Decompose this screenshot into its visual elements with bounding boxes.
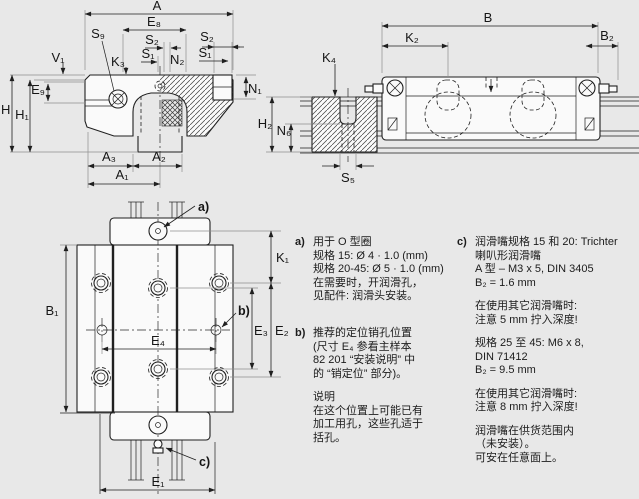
note-line: 规格 15: Ø 4 · 1.0 (mm) xyxy=(313,250,444,264)
callout-a-label: a) xyxy=(198,200,209,214)
note-line: 润滑嘴规格 15 和 20: Trichter xyxy=(475,236,618,250)
note-c-paragraph-4: 在使用其它润滑嘴时: 注意 8 mm 拧入深度! xyxy=(475,388,618,415)
drawing-top-view: a) b) c) K₁ E₂ E₃ E₄ B₁ xyxy=(0,198,300,499)
note-b-paragraph-2: 说明 在这个位置上可能已有 加工用孔，这些孔适于 括孔。 xyxy=(313,391,423,445)
callout-c-label: c) xyxy=(199,455,210,469)
note-c: c) 润滑嘴规格 15 和 20: Trichter 喇叭形润滑嘴 A 型 – … xyxy=(457,236,618,465)
note-line: 见配件: 润滑头安装。 xyxy=(313,290,444,304)
note-line: 在使用其它润滑嘴时: xyxy=(475,300,618,314)
note-b-marker: b) xyxy=(295,327,309,445)
note-line: 用于 O 型圈 xyxy=(313,236,444,250)
dim-label-H: H xyxy=(1,102,10,117)
dim-label-A2: A₂ xyxy=(152,149,166,164)
note-b-paragraph-1: 推荐的定位销孔位置 (尺寸 E₄ 参看主样本 82 201 “安装说明” 中 的… xyxy=(313,327,423,381)
dim-label-A3: A₃ xyxy=(102,149,116,164)
dim-label-H2: H₂ xyxy=(258,116,272,131)
dim-label-S9: S₉ xyxy=(91,26,105,41)
note-a-text: 用于 O 型圈 规格 15: Ø 4 · 1.0 (mm) 规格 20-45: … xyxy=(313,236,444,304)
dim-label-E1: E₁ xyxy=(151,474,165,489)
dim-label-S2-center: S₂ xyxy=(145,32,159,47)
dim-label-E8: E₈ xyxy=(147,14,161,29)
dim-label-E4: E₄ xyxy=(151,333,165,348)
dim-label-E9: E₉ xyxy=(31,82,45,97)
note-line: 的 “销定位” 部分)。 xyxy=(313,368,423,382)
note-line: (尺寸 E₄ 参看主样本 xyxy=(313,341,423,355)
note-line: 可安在任意面上。 xyxy=(475,452,618,466)
dim-label-K2: K₂ xyxy=(405,30,419,45)
note-line: 规格 20-45: Ø 5 · 1.0 (mm) xyxy=(313,263,444,277)
cross-section-geometry xyxy=(85,66,233,162)
note-line: 喇叭形润滑嘴 xyxy=(475,250,618,264)
note-line: 说明 xyxy=(313,391,423,405)
note-line: 注意 5 mm 拧入深度! xyxy=(475,314,618,328)
dim-label-K4: K₄ xyxy=(322,50,336,65)
dim-label-N2: N₂ xyxy=(170,52,184,67)
dim-label-E3: E₃ xyxy=(254,323,268,338)
note-c-paragraph-2: 在使用其它润滑嘴时: 注意 5 mm 拧入深度! xyxy=(475,300,618,327)
side-view-geometry xyxy=(300,77,639,162)
note-line: B₂ = 1.6 mm xyxy=(475,277,618,291)
dim-label-N6: N₆ xyxy=(277,123,292,138)
dim-label-K1: K₁ xyxy=(276,250,290,265)
drawing-cross-section: A E₈ S₂ S₁ N₂ S₂ S₁ N₁ K₃ xyxy=(0,0,270,198)
note-line: A 型 – M3 x 5, DIN 3405 xyxy=(475,263,618,277)
note-a: a) 用于 O 型圈 规格 15: Ø 4 · 1.0 (mm) 规格 20-4… xyxy=(295,236,444,304)
dim-label-A: A xyxy=(153,0,162,13)
note-line: 在需要时，开润滑孔， xyxy=(313,277,444,291)
note-line: 润滑嘴在供货范围内 xyxy=(475,425,618,439)
drawing-side-view: B K₂ B₂ K₄ H₂ N₆ S₅ xyxy=(252,0,639,202)
technical-drawing-page: A E₈ S₂ S₁ N₂ S₂ S₁ N₁ K₃ xyxy=(0,0,639,499)
note-line: 加工用孔，这些孔适于 xyxy=(313,418,423,432)
note-b: b) 推荐的定位销孔位置 (尺寸 E₄ 参看主样本 82 201 “安装说明” … xyxy=(295,327,423,445)
dim-label-A1: A₁ xyxy=(115,167,129,182)
dim-label-H1: H₁ xyxy=(15,107,29,122)
dim-label-S1-right: S₁ xyxy=(198,45,212,60)
note-line: 推荐的定位销孔位置 xyxy=(313,327,423,341)
dim-label-S5: S₅ xyxy=(341,170,355,185)
dim-label-B: B xyxy=(484,10,493,25)
note-line: B₂ = 9.5 mm xyxy=(475,364,618,378)
note-c-paragraph-5: 润滑嘴在供货范围内 （未安装）。 可安在任意面上。 xyxy=(475,425,618,466)
note-line: 在这个位置上可能已有 xyxy=(313,405,423,419)
dim-label-E2: E₂ xyxy=(275,323,289,338)
dim-label-S2-right: S₂ xyxy=(200,29,214,44)
note-line: 括孔。 xyxy=(313,432,423,446)
note-line: 注意 8 mm 拧入深度! xyxy=(475,401,618,415)
dim-label-B2: B₂ xyxy=(600,28,614,43)
note-line: 82 201 “安装说明” 中 xyxy=(313,354,423,368)
dim-label-S1-center: S₁ xyxy=(141,46,155,61)
dim-label-B1: B₁ xyxy=(45,303,59,318)
dim-label-V1: V₁ xyxy=(51,50,65,65)
callout-b-label: b) xyxy=(238,304,250,318)
dim-label-K3: K₃ xyxy=(111,54,125,69)
top-view-geometry xyxy=(77,202,233,494)
note-a-marker: a) xyxy=(295,236,309,304)
note-line: 在使用其它润滑嘴时: xyxy=(475,388,618,402)
note-line: （未安装）。 xyxy=(475,438,618,452)
note-c-paragraph-3: 规格 25 至 45: M6 x 8, DIN 71412 B₂ = 9.5 m… xyxy=(475,337,618,378)
note-c-paragraph-1: 润滑嘴规格 15 和 20: Trichter 喇叭形润滑嘴 A 型 – M3 … xyxy=(475,236,618,290)
note-c-marker: c) xyxy=(457,236,471,465)
note-line: DIN 71412 xyxy=(475,351,618,365)
note-line: 规格 25 至 45: M6 x 8, xyxy=(475,337,618,351)
